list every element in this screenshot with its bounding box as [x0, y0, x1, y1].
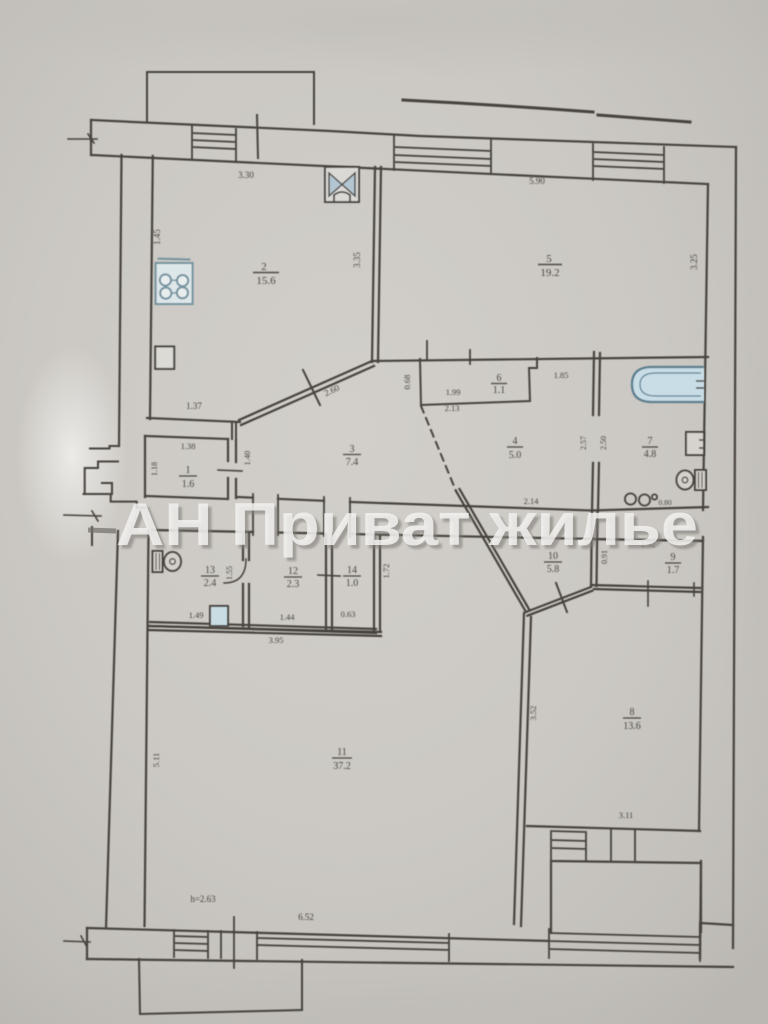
- svg-text:12: 12: [288, 566, 298, 577]
- svg-text:13.6: 13.6: [623, 721, 641, 732]
- svg-text:2.50: 2.50: [599, 436, 608, 450]
- svg-text:1.1: 1.1: [493, 385, 506, 396]
- svg-text:5.11: 5.11: [151, 753, 161, 768]
- svg-text:1.99: 1.99: [446, 387, 461, 397]
- svg-text:1.37: 1.37: [186, 401, 202, 411]
- svg-text:5: 5: [546, 253, 552, 265]
- svg-text:1.40: 1.40: [242, 451, 252, 466]
- svg-text:2.4: 2.4: [204, 578, 217, 589]
- svg-text:1.38: 1.38: [181, 441, 196, 451]
- svg-text:3.35: 3.35: [352, 252, 362, 268]
- svg-text:2.3: 2.3: [287, 579, 300, 590]
- svg-text:7.4: 7.4: [346, 457, 359, 468]
- svg-text:13: 13: [205, 565, 215, 576]
- svg-text:5.8: 5.8: [547, 564, 560, 575]
- svg-text:5.0: 5.0: [509, 450, 522, 461]
- svg-text:14: 14: [347, 565, 357, 576]
- svg-text:1.6: 1.6: [182, 479, 195, 490]
- svg-text:3.25: 3.25: [689, 254, 699, 270]
- svg-text:1.44: 1.44: [280, 612, 296, 622]
- svg-text:6.52: 6.52: [298, 912, 314, 922]
- svg-text:11: 11: [337, 747, 347, 758]
- svg-text:3.30: 3.30: [238, 170, 254, 180]
- svg-text:5.90: 5.90: [529, 176, 545, 186]
- svg-text:1.0: 1.0: [346, 578, 359, 589]
- svg-text:2.13: 2.13: [445, 403, 460, 413]
- svg-text:1.18: 1.18: [150, 462, 159, 476]
- svg-text:2: 2: [261, 261, 267, 273]
- svg-text:3.52: 3.52: [528, 706, 538, 721]
- svg-text:4: 4: [513, 436, 518, 447]
- svg-text:7: 7: [648, 436, 653, 447]
- svg-text:8: 8: [630, 707, 635, 718]
- svg-text:1.45: 1.45: [152, 229, 162, 245]
- svg-text:37.2: 37.2: [333, 761, 351, 772]
- svg-text:1.7: 1.7: [667, 565, 680, 576]
- svg-text:1.49: 1.49: [189, 610, 204, 620]
- svg-text:4.8: 4.8: [644, 449, 657, 460]
- svg-text:0.68: 0.68: [402, 375, 412, 390]
- svg-text:15.6: 15.6: [256, 275, 276, 287]
- svg-text:3.95: 3.95: [269, 635, 284, 645]
- svg-text:3: 3: [350, 444, 355, 455]
- svg-text:19.2: 19.2: [540, 267, 559, 279]
- svg-text:АН Приват жилье: АН Приват жилье: [116, 491, 698, 558]
- svg-text:h=2.63: h=2.63: [190, 894, 216, 904]
- svg-text:0.63: 0.63: [341, 609, 356, 619]
- svg-text:6: 6: [497, 373, 502, 384]
- svg-text:1.72: 1.72: [381, 564, 391, 579]
- svg-text:1.55: 1.55: [225, 566, 234, 580]
- svg-text:1: 1: [186, 465, 191, 476]
- svg-text:2.57: 2.57: [579, 436, 588, 450]
- svg-text:1.85: 1.85: [554, 370, 569, 380]
- svg-text:3.11: 3.11: [619, 810, 634, 820]
